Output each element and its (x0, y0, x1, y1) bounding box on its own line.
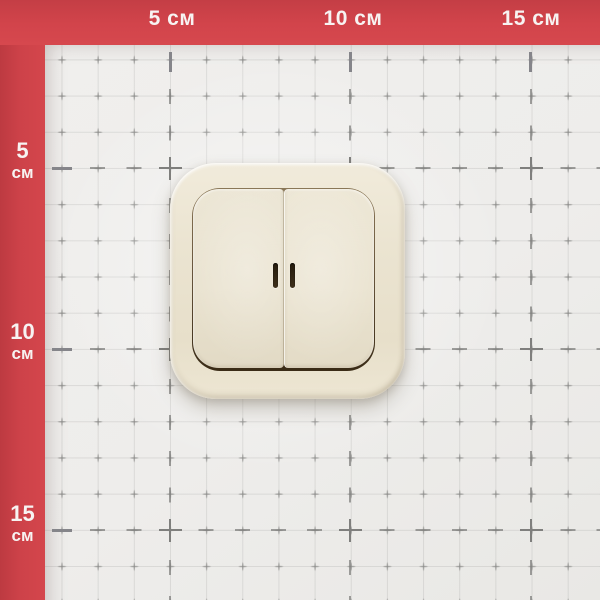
switch-rocker-right (284, 189, 375, 368)
switch-recess (192, 188, 375, 371)
indicator-slot-left (273, 263, 278, 288)
grid-cross-marker (520, 338, 543, 361)
ruler-label-5cm-left: 5 см (0, 140, 45, 181)
ruler-label-5cm-top: 5 см (149, 7, 196, 31)
gridline-15cm-horizontal (54, 529, 600, 531)
grid-cross-marker (159, 157, 182, 180)
ruler-tick-15cm (529, 52, 532, 72)
grid-cross-marker (520, 157, 543, 180)
switch-rockers (193, 189, 374, 368)
indicator-slot-right (290, 263, 295, 288)
ruler-tick-5cm (52, 167, 72, 170)
grid-cross-marker (339, 519, 362, 542)
ruler-value: 5 (0, 140, 45, 162)
ruler-label-10cm-top: 10 см (324, 7, 383, 31)
grid-cross-marker (520, 519, 543, 542)
ruler-unit: см (0, 345, 45, 362)
ruler-label-15cm-top: 15 см (502, 7, 561, 31)
ruler-label-10cm-left: 10 см (0, 321, 45, 362)
ruler-tick-5cm (169, 52, 172, 72)
ruler-value: 10 (0, 321, 45, 343)
ruler-label-15cm-left: 15 см (0, 503, 45, 544)
ruler-tick-10cm (349, 52, 352, 72)
product-photo: 5 см 10 см 15 см 5 см 10 см 15 см (0, 0, 600, 600)
switch-plate (170, 163, 405, 399)
ruler-unit: см (0, 527, 45, 544)
ruler-value: 15 (0, 503, 45, 525)
ruler-band-left: 5 см 10 см 15 см (0, 0, 45, 600)
grid-cross-marker (159, 519, 182, 542)
ruler-tick-15cm (52, 529, 72, 532)
ruler-tick-10cm (52, 348, 72, 351)
ruler-band-top: 5 см 10 см 15 см (0, 0, 600, 45)
switch-rocker-left (193, 189, 284, 368)
ruler-unit: см (0, 164, 45, 181)
